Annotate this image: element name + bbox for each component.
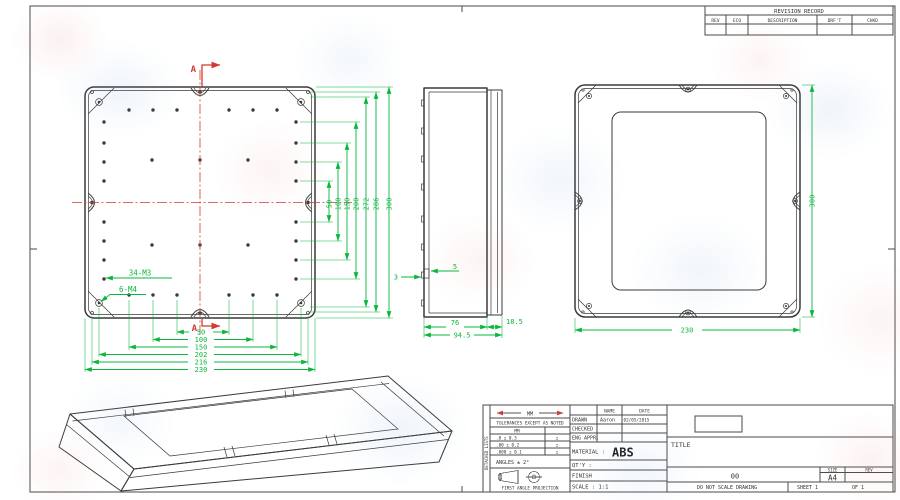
angles-note: ANGLES ± 2° [496,460,529,466]
projection-note: FIRST ANGLE PROJECTION [502,486,559,492]
dim-height-50: 50 [326,200,334,208]
size-value: A4 [828,474,838,483]
isometric-view [59,376,452,491]
drft-col-header: DRF'T [828,18,842,24]
material-value: ABS [612,446,634,460]
date-header: DATE [639,409,650,415]
tolerance-unit-header: MM [514,429,520,435]
tolerance-row-1: .0 ± 0.3 [496,436,517,442]
drawing-sheet: A A 50 100 150 200 [0,0,900,500]
tolerance-note: TOLERANCES EXCEPT AS NOTED [496,421,564,427]
tolerance-mark-3: ± [556,451,559,456]
name-header: NAME [604,409,615,415]
size-label: SIZE [828,468,838,473]
callout-m4-label: 6-M4 [119,285,138,294]
side-lid-section [487,90,502,315]
tolerance-mark-1: ± [556,437,559,442]
first-angle-projection-symbol [498,471,542,484]
back-corner-screws [582,89,793,313]
checked-label: CHECKED [572,427,593,433]
section-marker-top: A [191,65,220,86]
dim-boss-5: 5 [453,263,457,271]
tolerance-row-3: .000 ± 0.1 [496,450,522,456]
sheet-label: SHEET 1 [797,485,818,491]
dim-total-94-5: 94.5 [454,332,471,340]
dim-height-272: 272 [363,198,371,211]
dim-height-300: 300 [386,198,394,211]
dim-depth-76: 76 [451,319,459,327]
side-view: 3 5 76 18.5 94.5 [394,88,523,340]
finish-label: FINISH [572,474,592,480]
dim-lid-18-5: 18.5 [506,318,523,326]
side-view-dims: 3 5 76 18.5 94.5 [394,263,523,340]
dim-height-200: 200 [353,198,361,211]
sheet-frame [30,6,895,492]
drawing-canvas: A A 50 100 150 200 [0,0,900,500]
thread-callouts: 34-M3 6-M4 [101,269,172,302]
section-label-a-top: A [191,65,197,75]
front-view: A A [72,65,352,336]
tolerance-row-2: .00 ± 0.2 [496,443,520,449]
sheet-of-label: OF 1 [852,485,864,491]
dim-height-150: 150 [344,198,352,211]
drawn-name: Aaron [600,418,615,424]
logo-box [695,416,742,432]
units-label: MM [527,412,533,418]
drawn-date: 02/05/2015 [624,418,650,424]
eng-appr-label: ENG APPR. [572,436,599,442]
title-label: TITLE [671,441,691,449]
tolerance-mark-2: ± [556,444,559,449]
drawn-label: DRAWN [572,418,587,424]
revision-table: REVISION RECORD REV ECO DESCRIPTION DRF'… [705,6,893,35]
back-view-dims: 230 300 [575,85,817,335]
units-symbol: MM [497,412,563,418]
rev-col-header: REV [711,18,719,24]
dim-back-height-300: 300 [809,195,817,208]
dim-width-230: 230 [195,366,208,374]
dim-height-286: 286 [373,198,381,211]
description-col-header: DESCRIPTION [768,18,798,24]
title-block: DETACHED LISTS MM TOLERANCES EXCEPT AS N… [483,405,893,492]
chkd-col-header: CHKD [867,18,878,24]
back-view: 230 300 [575,85,817,335]
material-label: MATERIAL : [572,450,605,456]
stock-strip-label: DETACHED LISTS [484,436,489,470]
callout-m3-label: 34-M3 [129,269,152,278]
iso-screw-notches [125,390,337,458]
do-not-scale-note: DO NOT SCALE DRAWING [697,485,757,491]
scale-label: SCALE : 1:1 [572,485,608,491]
revision-table-title: REVISION RECORD [774,9,824,15]
dim-wall-3: 3 [394,274,398,282]
drawing-number: 00 [731,473,739,481]
rev-label: REV [865,468,873,473]
dim-back-width-230: 230 [681,327,694,335]
eco-col-header: ECO [733,18,741,24]
qty-label: QT'Y : [572,463,592,469]
dim-height-100: 100 [335,198,343,211]
